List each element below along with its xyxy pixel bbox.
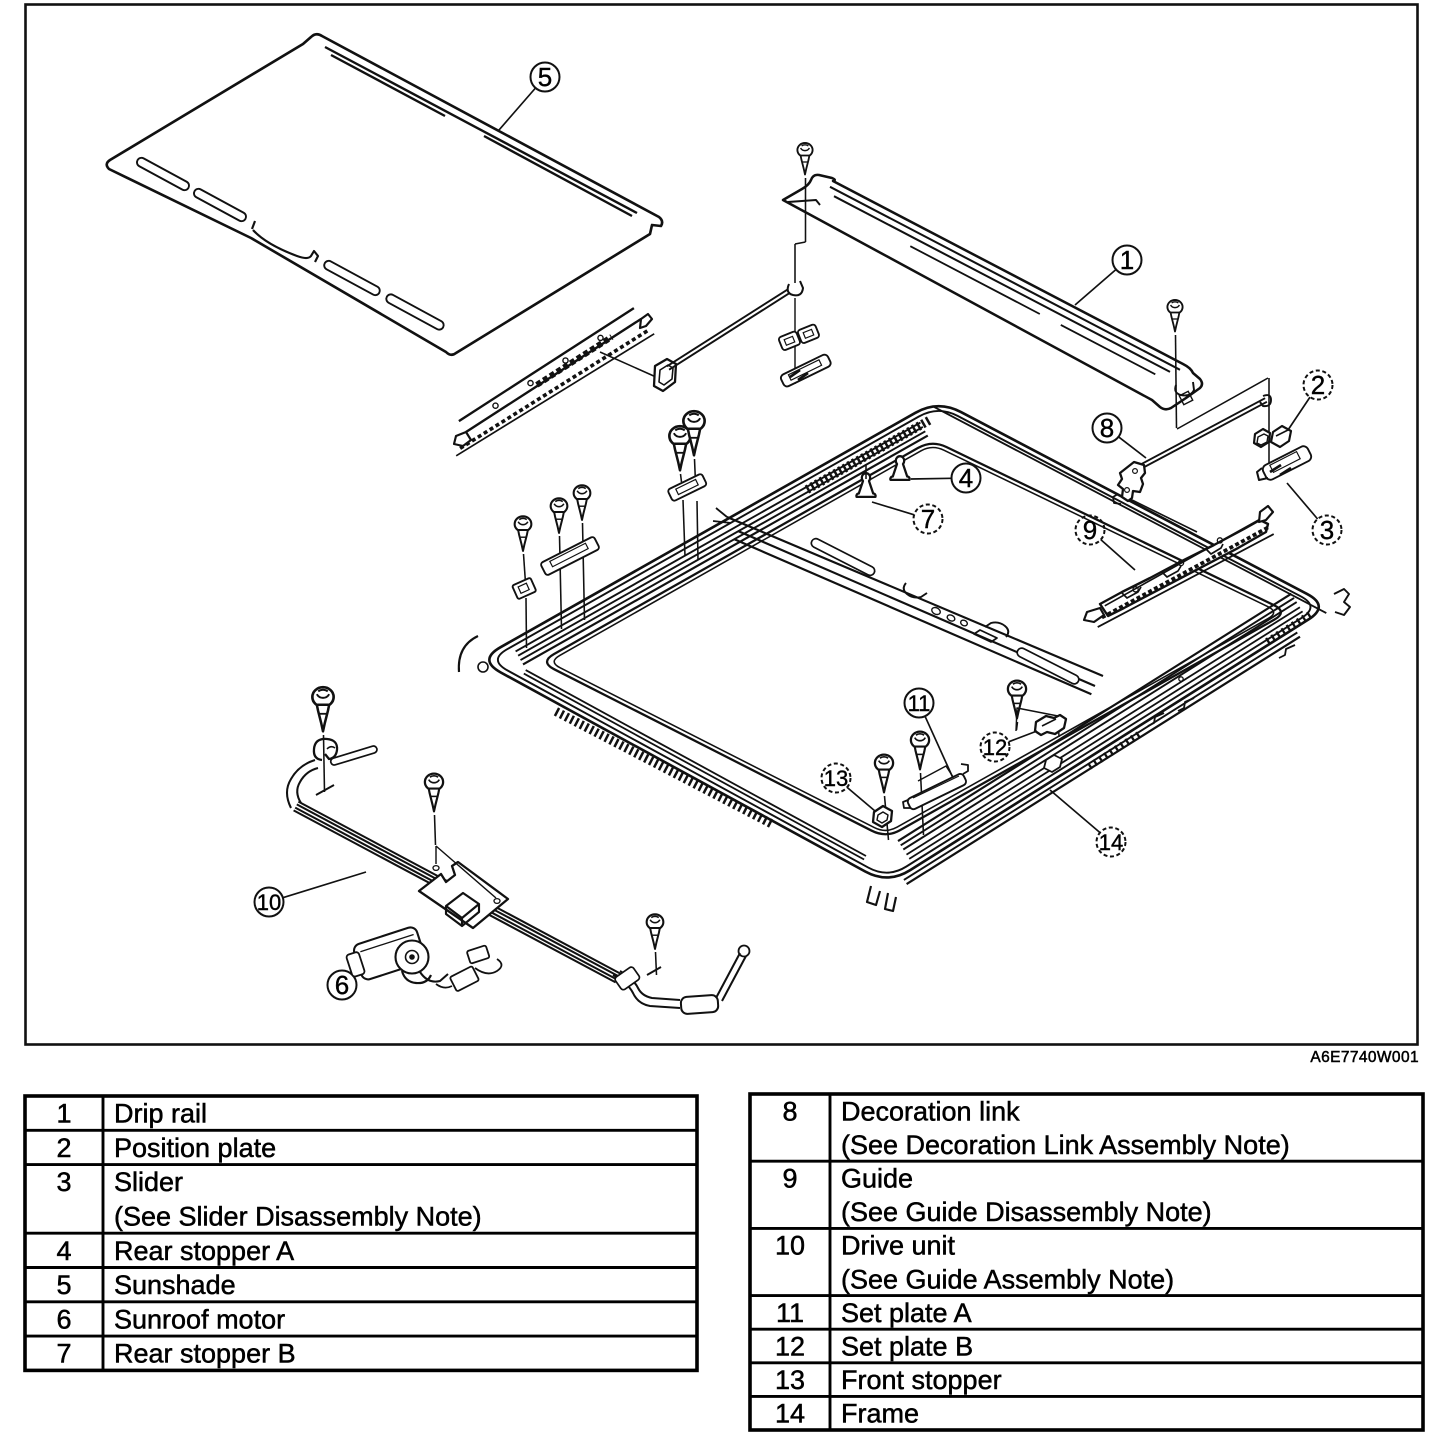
svg-text:(See Guide Assembly Note): (See Guide Assembly Note) xyxy=(841,1264,1174,1294)
svg-text:Rear stopper A: Rear stopper A xyxy=(114,1236,294,1266)
svg-text:3: 3 xyxy=(56,1167,71,1197)
svg-text:5: 5 xyxy=(56,1270,71,1300)
svg-text:14: 14 xyxy=(1099,830,1123,855)
svg-text:Drip rail: Drip rail xyxy=(114,1099,207,1129)
svg-text:Rear stopper B: Rear stopper B xyxy=(114,1339,296,1369)
svg-text:Set plate B: Set plate B xyxy=(841,1332,973,1362)
svg-text:2: 2 xyxy=(1311,370,1325,400)
svg-text:8: 8 xyxy=(782,1096,797,1126)
svg-text:7: 7 xyxy=(56,1339,71,1369)
svg-text:Front stopper: Front stopper xyxy=(841,1365,1002,1395)
svg-text:6: 6 xyxy=(56,1304,71,1334)
svg-text:10: 10 xyxy=(775,1231,805,1261)
svg-text:8: 8 xyxy=(1100,413,1114,443)
svg-text:Frame: Frame xyxy=(841,1399,919,1429)
svg-text:7: 7 xyxy=(921,504,935,534)
svg-text:13: 13 xyxy=(824,766,848,791)
svg-text:Decoration link: Decoration link xyxy=(841,1096,1020,1126)
svg-text:(See Guide Disassembly Note): (See Guide Disassembly Note) xyxy=(841,1197,1212,1227)
svg-text:Sunroof motor: Sunroof motor xyxy=(114,1304,285,1334)
svg-text:10: 10 xyxy=(257,890,281,915)
svg-text:Set plate A: Set plate A xyxy=(841,1298,972,1328)
svg-text:Drive unit: Drive unit xyxy=(841,1231,956,1261)
svg-text:11: 11 xyxy=(776,1298,804,1328)
svg-text:11: 11 xyxy=(908,691,931,716)
svg-text:Sunshade: Sunshade xyxy=(114,1270,236,1300)
svg-text:4: 4 xyxy=(959,463,973,493)
svg-text:A6E7740W001: A6E7740W001 xyxy=(1310,1049,1419,1066)
svg-text:1: 1 xyxy=(1120,245,1134,275)
svg-text:Guide: Guide xyxy=(841,1164,913,1194)
svg-text:2: 2 xyxy=(56,1133,71,1163)
svg-text:12: 12 xyxy=(983,735,1007,760)
svg-text:3: 3 xyxy=(1320,515,1334,545)
svg-text:1: 1 xyxy=(56,1099,71,1129)
svg-text:5: 5 xyxy=(538,62,552,92)
svg-text:Slider: Slider xyxy=(114,1167,183,1197)
svg-text:12: 12 xyxy=(775,1332,805,1362)
svg-text:9: 9 xyxy=(782,1164,797,1194)
svg-text:Position plate: Position plate xyxy=(114,1133,276,1163)
svg-text:9: 9 xyxy=(1083,515,1097,545)
svg-text:(See Decoration Link Assembly: (See Decoration Link Assembly Note) xyxy=(841,1130,1290,1160)
svg-text:6: 6 xyxy=(335,970,349,1000)
svg-text:13: 13 xyxy=(775,1365,805,1395)
svg-text:(See Slider Disassembly Note): (See Slider Disassembly Note) xyxy=(114,1202,482,1232)
svg-text:4: 4 xyxy=(56,1236,71,1266)
svg-text:14: 14 xyxy=(775,1399,805,1429)
